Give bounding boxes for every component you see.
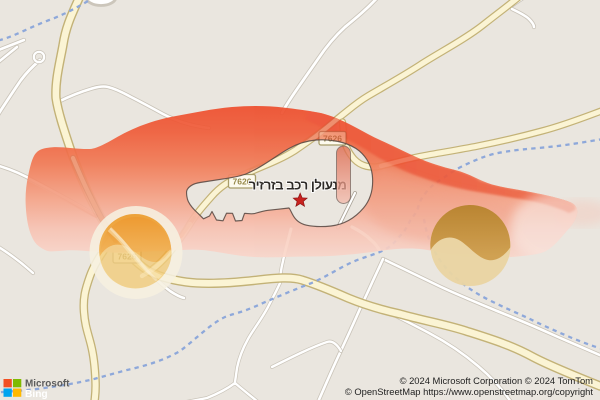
svg-text:Bing: Bing — [25, 389, 48, 400]
svg-text:© 2024 Microsoft Corporation ©: © 2024 Microsoft Corporation © 2024 TomT… — [400, 375, 594, 386]
svg-text:Microsoft: Microsoft — [25, 379, 70, 390]
svg-text:© OpenStreetMap https://www.op: © OpenStreetMap https://www.openstreetma… — [345, 386, 594, 397]
svg-text:מנעולן רכב בזרזיר: מנעולן רכב בזרזיר — [249, 178, 347, 193]
